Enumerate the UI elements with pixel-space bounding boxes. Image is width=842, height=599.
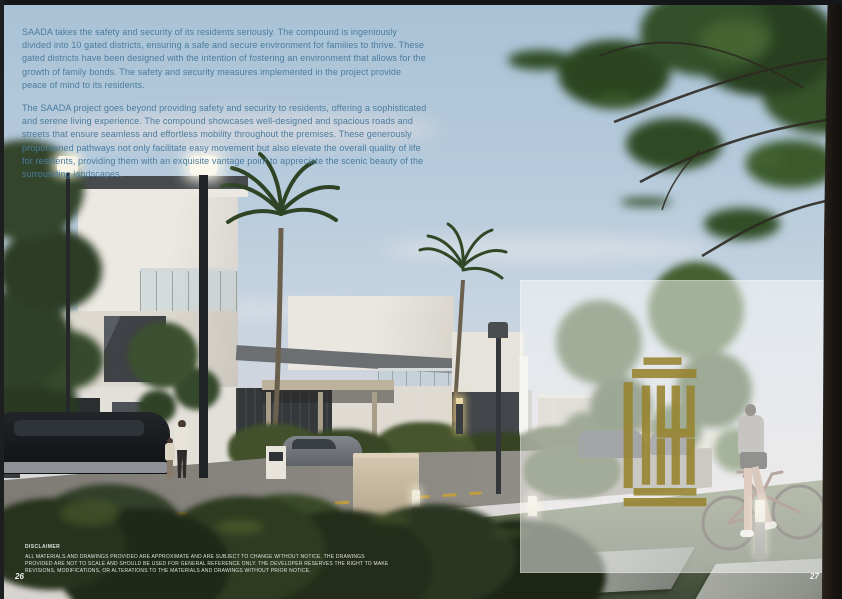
suv-sill [2, 462, 168, 473]
disclaimer-body: ALL MATERIALS AND DRAWINGS PROVIDED ARE … [25, 554, 393, 574]
street-lamp-pole [496, 338, 501, 494]
villa-balcony-glass [140, 268, 238, 315]
suv-windows [14, 420, 144, 436]
street-lamp-pole [199, 175, 208, 478]
disclaimer-heading: DISCLAIMER [25, 544, 393, 550]
page-number-right: 27 [810, 572, 819, 581]
saada-kufic-logo-icon [622, 342, 708, 520]
intro-paragraph-2: The SAADA project goes beyond providing … [22, 102, 428, 181]
brochure-page: SAADA takes the safety and security of i… [0, 0, 842, 599]
villa-number-pillar [266, 446, 286, 479]
pedestrian-child [165, 443, 175, 461]
garden-lamp [456, 398, 463, 434]
disclaimer-block: DISCLAIMER ALL MATERIALS AND DRAWINGS PR… [25, 544, 393, 574]
intro-text-block: SAADA takes the safety and security of i… [22, 26, 428, 191]
carport-beam [262, 380, 394, 390]
villa-number-plate [269, 452, 283, 461]
page-number-left: 26 [15, 572, 24, 581]
cloud [380, 236, 710, 262]
pedestrian-woman [175, 427, 188, 451]
page-edge-top [0, 0, 842, 5]
villa-wall [452, 332, 524, 394]
car-window [292, 439, 336, 449]
intro-paragraph-1: SAADA takes the safety and security of i… [22, 26, 428, 92]
foreground-shrubs-highlight [60, 500, 120, 526]
bollard-light [412, 490, 420, 534]
garden-tree [128, 322, 198, 388]
page-edge-left [0, 0, 4, 599]
tree-foliage-highlight [700, 20, 770, 60]
pedestrian-child [167, 460, 173, 478]
